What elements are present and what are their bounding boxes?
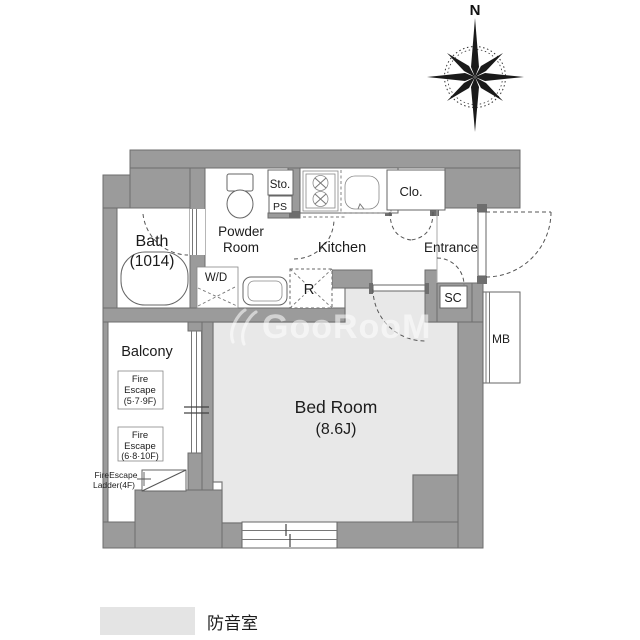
legend-swatch [100,607,195,635]
compass-north-label: N [470,2,481,19]
bath-size-label: (1014) [130,253,175,270]
legend: 防音室 [100,607,258,635]
entrance-label: Entrance [424,240,478,255]
storage-label: Sto. [270,179,290,191]
front-door-arc [486,212,551,277]
kitchen-label: Kitchen [318,240,366,256]
bedroom-door-jamb-left [369,283,373,294]
bedroom-size-label: (8.6J) [316,421,357,438]
front-door-jamb-bottom [477,276,487,284]
floor-plan-svg: Bath (1014) Powder Room Kitchen Entrance… [0,0,640,640]
powder-room-label-2: Room [223,240,259,255]
fire-escape-upper-3: (5·7·9F) [124,396,157,406]
balcony-label: Balcony [121,344,173,360]
legend-soundproof-label: 防音室 [207,614,258,633]
bedroom-door-leaf [373,285,425,291]
fire-escape-ladder-icon [137,470,186,491]
bath-label: Bath [136,233,169,250]
fire-escape-lower-1: Fire [132,430,148,441]
floor-plan: Bath (1014) Powder Room Kitchen Entrance… [0,0,640,640]
kitchen-sink-icon [345,176,379,209]
bedroom-window [242,522,337,548]
shoe-closet-label: SC [444,291,461,305]
powder-room-label-1: Powder [218,224,264,239]
watermark-text: GooRooM [262,308,431,346]
front-door-jamb-top [477,204,487,212]
kitchen-counter [300,168,398,217]
closet-label: Clo. [399,184,422,199]
vanity-sink-icon [243,277,287,305]
fire-escape-lower-3: (6·8·10F) [121,451,159,461]
refrigerator-label: R [304,281,315,298]
bedroom-door-jamb-right [425,283,429,294]
compass-rose-icon: N [427,2,524,132]
pipe-space-label: PS [273,201,287,213]
bedroom-label: Bed Room [295,397,378,417]
watermark: GooRooM [232,308,432,346]
fire-escape-ladder-1: FireEscape [95,470,138,480]
meter-box-label: MB [492,332,510,346]
fire-escape-upper-1: Fire [132,374,148,385]
front-door-leaf [478,212,486,276]
toilet-icon [227,174,253,218]
fire-escape-upper-2: Escape [124,385,156,396]
washer-dryer-label: W/D [205,272,227,284]
fire-escape-ladder-2: Ladder(4F) [93,480,135,490]
